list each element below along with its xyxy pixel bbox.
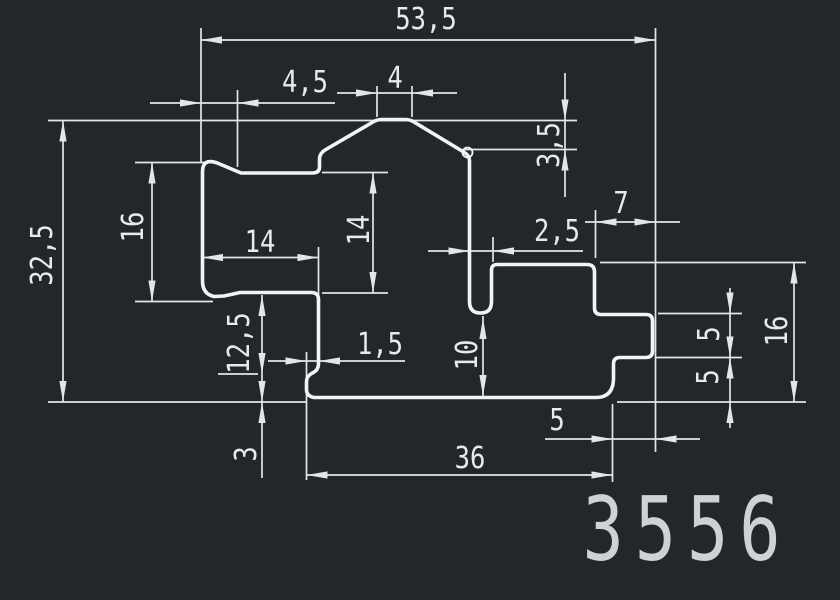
dimension-arrow xyxy=(258,381,265,402)
dimension-arrow xyxy=(726,337,733,358)
dimension-arrow xyxy=(790,381,797,402)
dimension-arrow xyxy=(148,281,155,302)
dim-label-d53_5: 53,5 xyxy=(395,5,456,35)
dimension-arrow xyxy=(369,173,376,194)
dimension-arrow xyxy=(180,99,201,106)
dimension-arrow xyxy=(790,263,797,284)
dim-label-d16_right: 16 xyxy=(763,316,793,347)
dim-label-d3: 3 xyxy=(232,446,262,461)
dimension-arrow xyxy=(258,295,265,316)
dimension-arrow xyxy=(592,435,613,442)
dimension-arrow xyxy=(726,293,733,314)
dim-label-d4_5: 4,5 xyxy=(282,68,328,98)
dimension-arrow xyxy=(449,247,470,254)
dim-label-d32_5: 32,5 xyxy=(28,224,58,285)
dimension-arrow xyxy=(726,402,733,423)
dimension-arrow xyxy=(148,163,155,184)
dim-label-d14_height: 14 xyxy=(345,215,375,246)
dimension-arrow xyxy=(561,100,568,121)
dimension-arrow xyxy=(656,435,677,442)
dimension-arrow xyxy=(479,318,486,339)
dimension-arrow xyxy=(258,402,265,423)
dimension-arrow xyxy=(59,121,66,142)
dimension-arrow xyxy=(635,36,656,43)
dimension-arrow xyxy=(356,89,377,96)
dimension-arrow xyxy=(298,254,319,261)
dim-label-d4: 4 xyxy=(387,64,402,94)
dimension-arrow xyxy=(201,36,222,43)
dimension-arrow xyxy=(412,89,433,96)
dimension-arrow xyxy=(286,357,307,364)
dimension-arrow xyxy=(493,247,514,254)
dim-label-d14_width: 14 xyxy=(245,228,276,258)
dimension-arrow xyxy=(369,272,376,293)
dim-label-d36: 36 xyxy=(455,444,486,474)
dim-label-d5_right_upper: 5 xyxy=(695,326,725,341)
dim-label-d12_5: 12,5 xyxy=(225,312,255,373)
part-number: 3556 xyxy=(583,486,792,574)
dimension-arrow xyxy=(202,254,223,261)
dim-label-d16_left: 16 xyxy=(119,212,149,243)
cad-drawing: 53,54,543,532,51614142,5712,51,510551635… xyxy=(0,0,840,600)
dim-label-d1_5: 1,5 xyxy=(357,330,403,360)
dim-label-d7: 7 xyxy=(613,189,628,219)
dim-label-d10: 10 xyxy=(453,340,483,371)
dimension-arrow xyxy=(258,353,265,374)
dimension-arrow xyxy=(319,357,340,364)
dimension-arrow xyxy=(238,99,259,106)
dim-label-d3_5: 3,5 xyxy=(535,122,565,168)
dimension-arrow xyxy=(726,358,733,379)
dimension-arrow xyxy=(479,375,486,396)
dim-label-d5_right_lower: 5 xyxy=(694,369,724,384)
dimension-arrow xyxy=(59,381,66,402)
dimension-arrow xyxy=(307,471,328,478)
dim-label-d5_bottom: 5 xyxy=(549,406,564,436)
dimension-arrow xyxy=(635,218,656,225)
dim-label-d2_5: 2,5 xyxy=(534,217,580,247)
